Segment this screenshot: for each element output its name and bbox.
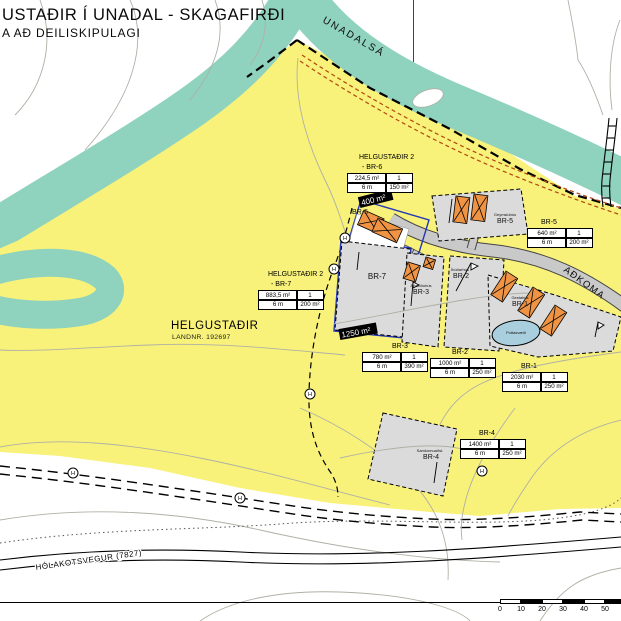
scale-tick: 30 — [556, 606, 570, 613]
scale-tick: 10 — [514, 606, 528, 613]
scale-seg — [584, 599, 605, 604]
plot-label-br1: BR-1 — [512, 301, 528, 308]
br7-area: 883,5 m² — [259, 291, 297, 300]
plot-sublabel-br3: Aðstöðuhús — [410, 284, 431, 288]
plot-label-br5: BR-5 — [497, 218, 513, 225]
table-br5-header: BR-5 — [541, 218, 593, 228]
br5-setback: 6 m — [528, 238, 566, 247]
scale-seg — [500, 599, 521, 604]
table-br7: HELGUSTAÐIR 2 - BR-7 883,5 m² 1 6 m 200 … — [258, 270, 324, 310]
br1-setback: 6 m — [503, 382, 541, 391]
br5-area: 640 m² — [528, 229, 566, 238]
table-br7-header1: HELGUSTAÐIR 2 — [268, 270, 324, 280]
table-br1: BR-1 2030 m² 1 6 m 250 m² — [502, 362, 568, 392]
scale-tick: 20 — [535, 606, 549, 613]
marker-h: H — [343, 236, 347, 242]
br4-setback: 6 m — [461, 449, 499, 458]
plan-drawing: H H H H H H 400 m² 1250 m² UNADALSÁ AÐKO… — [0, 0, 621, 621]
br7-count: 1 — [297, 291, 323, 300]
scale-bar: 0 10 20 30 40 50 — [500, 599, 621, 617]
table-br4: BR-4 1400 m² 1 6 m 250 m² — [460, 429, 526, 459]
plot-label-br6: BR-6 — [352, 209, 368, 216]
pond-label: Pottasvæði — [506, 331, 526, 335]
page-title: USTAÐIR Í UNADAL - SKAGAFIRÐI — [2, 6, 285, 25]
farm-name: HELGUSTAÐIR — [171, 320, 259, 332]
plot-sublabel-br2: Íbúðarhús — [451, 268, 469, 272]
scale-seg — [542, 599, 563, 604]
scale-seg — [521, 599, 542, 604]
br1-count: 1 — [541, 373, 567, 382]
br2-setback: 6 m — [431, 368, 469, 377]
table-br2: BR-2 1000 m² 1 6 m 250 m² — [430, 348, 496, 378]
table-br1-header: BR-1 — [521, 362, 568, 372]
br1-area: 2030 m² — [503, 373, 541, 382]
br1-building-area: 250 m² — [541, 382, 567, 391]
table-br7-header2: - BR-7 — [271, 280, 324, 290]
bottom-road — [0, 537, 621, 570]
scale-tick: 40 — [577, 606, 591, 613]
farm-landnr: LANDNR. 192697 — [172, 334, 231, 341]
page-subtitle: A AÐ DEILISKIPULAGI — [2, 26, 141, 40]
plot-label-br7: BR-7 — [368, 273, 386, 280]
scale-seg — [563, 599, 584, 604]
plot-label-br4: BR-4 — [423, 454, 439, 461]
br7-setback: 6 m — [259, 300, 297, 309]
plot-sublabel-br5: Geymsluhús — [494, 213, 516, 217]
br4-building-area: 250 m² — [499, 449, 525, 458]
svg-text:H: H — [238, 496, 242, 502]
map-frame-bottom — [0, 602, 500, 603]
table-br6-header2: - BR-6 — [362, 163, 414, 173]
svg-text:H: H — [71, 471, 75, 477]
br7-building-area: 200 m² — [297, 300, 323, 309]
plot-sublabel-br4: Samkomuaðst. — [417, 449, 444, 453]
br6-building-area: 150 m² — [386, 183, 412, 192]
br2-count: 1 — [469, 359, 495, 368]
table-br3-header: BR-3 — [392, 342, 428, 352]
map-canvas: H H H H H H 400 m² 1250 m² UNADALSÁ AÐKO… — [0, 0, 621, 621]
table-br6-header1: HELGUSTAÐIR 2 — [359, 153, 414, 163]
br3-building-area: 390 m² — [401, 362, 427, 371]
br6-count: 1 — [386, 174, 412, 183]
svg-text:H: H — [480, 469, 484, 475]
table-br5: BR-5 640 m² 1 6 m 200 m² — [527, 218, 593, 248]
scale-seg — [605, 599, 621, 604]
br3-area: 780 m² — [363, 353, 401, 362]
table-br2-header: BR-2 — [452, 348, 496, 358]
br3-count: 1 — [401, 353, 427, 362]
plot-sublabel-br1: Gestahús — [511, 296, 528, 300]
br5-building-area: 200 m² — [566, 238, 592, 247]
br5-count: 1 — [566, 229, 592, 238]
table-br6: HELGUSTAÐIR 2 - BR-6 224,5 m² 1 6 m 150 … — [347, 153, 414, 193]
br6-area: 224,5 m² — [348, 174, 386, 183]
svg-text:H: H — [308, 392, 312, 398]
plot-br7 — [335, 241, 410, 337]
table-br3: BR-3 780 m² 1 6 m 390 m² — [362, 342, 428, 372]
plot-label-br3: BR-3 — [413, 289, 429, 296]
scale-tick: 0 — [493, 606, 507, 613]
br4-count: 1 — [499, 440, 525, 449]
br4-area: 1400 m² — [461, 440, 499, 449]
table-br4-header: BR-4 — [479, 429, 526, 439]
svg-text:H: H — [332, 267, 336, 273]
br6-setback: 6 m — [348, 183, 386, 192]
title-block-edge — [413, 0, 414, 62]
br2-area: 1000 m² — [431, 359, 469, 368]
plot-label-br2: BR-2 — [453, 273, 469, 280]
br3-setback: 6 m — [363, 362, 401, 371]
scale-tick: 50 — [598, 606, 612, 613]
br2-building-area: 250 m² — [469, 368, 495, 377]
